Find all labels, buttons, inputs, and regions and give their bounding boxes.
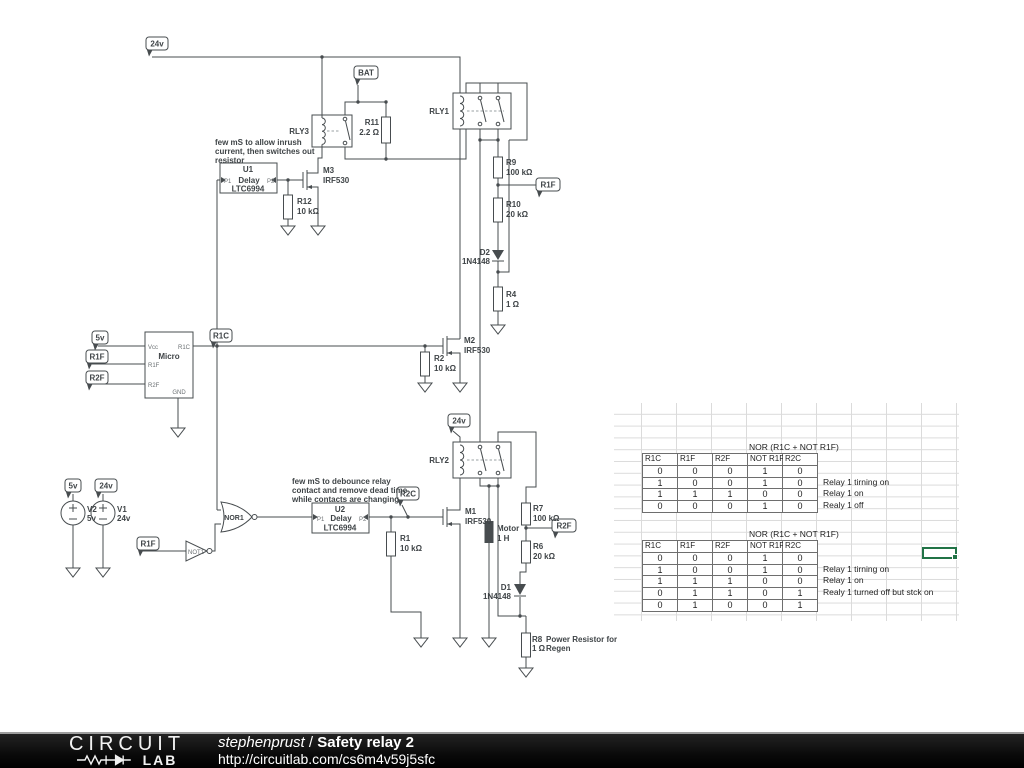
- resistor-r1: [387, 532, 396, 556]
- label-u2-delay: Delay: [330, 514, 352, 523]
- label-r10: R10: [506, 200, 521, 209]
- table-cell[interactable]: 0: [783, 576, 817, 587]
- table-cell[interactable]: 0: [643, 466, 677, 477]
- label-rly1: RLY1: [429, 107, 449, 116]
- flag-24v-rly2: 24v: [448, 414, 470, 434]
- selected-cell[interactable]: [922, 547, 957, 559]
- spreadsheet[interactable]: NOR (R1C + NOT R1F) R1CR1FR2FNOT R1FR2C0…: [614, 403, 959, 621]
- relay-rly1: [453, 93, 511, 129]
- svg-text:R1F: R1F: [89, 353, 104, 362]
- table-cell[interactable]: 0: [713, 600, 747, 611]
- column-header-cell[interactable]: NOT R1F: [748, 454, 782, 465]
- resistor-r7: [522, 503, 531, 525]
- logo-wordmark-lab: LAB: [143, 752, 178, 768]
- resistor-r11: [382, 117, 391, 143]
- table-cell[interactable]: 0: [783, 478, 817, 489]
- label-m3: M3: [323, 166, 335, 175]
- label-u2-p2: P2: [359, 517, 367, 523]
- label-v2: V2: [87, 505, 97, 514]
- label-r6: R6: [533, 542, 544, 551]
- pin-vcc: Vcc: [148, 345, 158, 351]
- label-u2: U2: [335, 505, 346, 514]
- label-m1-part: IRF530: [465, 517, 492, 526]
- row-annotation: Relay 1 tirning on: [820, 564, 889, 576]
- pin-r1f: R1F: [148, 363, 160, 369]
- table-cell[interactable]: 0: [783, 501, 817, 512]
- label-not1: NOT1: [188, 550, 205, 556]
- table-cell[interactable]: 0: [643, 600, 677, 611]
- label-m3-part: IRF530: [323, 176, 350, 185]
- label-u2-p1: P1: [317, 517, 325, 523]
- table-cell[interactable]: 1: [748, 501, 782, 512]
- svg-text:24v: 24v: [452, 417, 466, 426]
- label-r7: R7: [533, 504, 544, 513]
- table-cell[interactable]: 0: [678, 501, 712, 512]
- column-header-cell[interactable]: R1F: [678, 454, 712, 465]
- label-r12: R12: [297, 197, 312, 206]
- pin-gnd: GND: [172, 390, 186, 396]
- resistor-diode-icon: [77, 754, 141, 766]
- label-r4: R4: [506, 290, 517, 299]
- label-m2-part: IRF530: [464, 346, 491, 355]
- note-u2-line3: while contacts are changing: [291, 495, 399, 504]
- label-nor1: NOR1: [224, 515, 244, 522]
- table-cell[interactable]: 0: [713, 466, 747, 477]
- table-cell[interactable]: 0: [713, 501, 747, 512]
- fill-handle[interactable]: [952, 554, 958, 560]
- flag-r1f-not: R1F: [137, 537, 159, 557]
- table-cell[interactable]: 1: [748, 478, 782, 489]
- row-annotation: Relay 1 tirning on: [820, 477, 889, 489]
- truth-table-2: R1CR1FR2FNOT R1FR2C000101001011100011010…: [642, 540, 818, 612]
- resistor-r2: [421, 352, 430, 376]
- column-header-cell[interactable]: NOT R1F: [748, 541, 782, 552]
- label-r7-value: 100 kΩ: [533, 514, 560, 523]
- table-cell[interactable]: 0: [678, 553, 712, 564]
- flag-24v-src: 24v: [95, 479, 117, 499]
- relay-rly2: [453, 442, 511, 478]
- row-annotation: Relay 1 on: [820, 488, 864, 500]
- resistor-r10: [494, 198, 503, 222]
- page: 24v BAT R1F R1C 5v R1F R2F 24v R2C R2F 5…: [0, 0, 1024, 768]
- table-cell[interactable]: 0: [713, 565, 747, 576]
- label-r8-value: 1 Ω: [532, 644, 546, 653]
- column-header-cell[interactable]: R1C: [643, 541, 677, 552]
- column-header-cell[interactable]: R1C: [643, 454, 677, 465]
- label-u2-part: LTC6994: [324, 524, 357, 533]
- svg-text:R1F: R1F: [140, 540, 155, 549]
- table-cell[interactable]: 0: [783, 489, 817, 500]
- label-r12-value: 10 kΩ: [297, 207, 320, 216]
- label-m2: M2: [464, 336, 476, 345]
- svg-text:24v: 24v: [99, 482, 113, 491]
- table-cell[interactable]: 0: [643, 588, 677, 599]
- label-rly3: RLY3: [289, 127, 309, 136]
- table-cell[interactable]: 0: [678, 478, 712, 489]
- column-header-cell[interactable]: R2F: [713, 454, 747, 465]
- pin-r2f: R2F: [148, 383, 160, 389]
- label-d1: D1: [501, 583, 512, 592]
- flag-24v-top: 24v: [146, 37, 168, 57]
- circuit-title-line: stephenprust / Safety relay 2: [218, 735, 435, 751]
- label-r4-value: 1 Ω: [506, 300, 520, 309]
- flag-5v-micro: 5v: [92, 331, 108, 351]
- table-note: NOR (R1C + NOT R1F): [749, 442, 839, 453]
- relay-rly3: [312, 115, 352, 147]
- label-d1-part: 1N4148: [483, 592, 512, 601]
- svg-text:R1C: R1C: [213, 332, 229, 341]
- table-cell[interactable]: 0: [748, 600, 782, 611]
- column-header-cell[interactable]: R2C: [783, 541, 817, 552]
- row-annotation: Realy 1 off: [820, 500, 863, 512]
- table-cell[interactable]: 1: [748, 553, 782, 564]
- table-cell[interactable]: 1: [678, 489, 712, 500]
- label-rly2: RLY2: [429, 456, 449, 465]
- note-r8-line2: Regen: [546, 644, 571, 653]
- column-header-cell[interactable]: R2C: [783, 454, 817, 465]
- svg-text:5v: 5v: [96, 334, 105, 343]
- table-cell[interactable]: 0: [748, 576, 782, 587]
- column-header-cell[interactable]: R2F: [713, 541, 747, 552]
- table-cell[interactable]: 0: [748, 588, 782, 599]
- truth-table-1: R1CR1FR2FNOT R1FR2C00010100101110000010: [642, 453, 818, 513]
- footer-bar: CIRCUIT LAB stephenprust / Safety relay …: [0, 732, 1024, 768]
- resistor-r6: [522, 541, 531, 563]
- label-r11-value: 2.2 Ω: [359, 128, 379, 137]
- flag-r2f-micro: R2F: [86, 371, 108, 391]
- label-r1-value: 10 kΩ: [400, 544, 423, 553]
- table-cell[interactable]: 1: [678, 576, 712, 587]
- note-u1-line2: current, then switches out: [215, 147, 315, 156]
- svg-text:BAT: BAT: [358, 69, 374, 78]
- table-cell[interactable]: 1: [678, 588, 712, 599]
- svg-text:5v: 5v: [69, 482, 78, 491]
- table-cell[interactable]: 0: [783, 565, 817, 576]
- table-cell[interactable]: 0: [643, 553, 677, 564]
- row-annotation: Relay 1 on: [820, 575, 864, 587]
- label-r1: R1: [400, 534, 411, 543]
- flag-bat: BAT: [354, 66, 378, 86]
- table-cell[interactable]: 1: [678, 600, 712, 611]
- circuit-title: Safety relay 2: [317, 734, 414, 751]
- label-u1-p2: P2: [267, 179, 275, 185]
- note-u2-line2: contact and remove dead time: [292, 486, 408, 495]
- flag-r1f-micro: R1F: [86, 350, 108, 370]
- label-v1: V1: [117, 505, 127, 514]
- circuit-url[interactable]: http://circuitlab.com/cs6m4v59j5sfc: [218, 751, 435, 767]
- label-r10-value: 20 kΩ: [506, 210, 529, 219]
- label-motor-value: 1 H: [497, 534, 510, 543]
- resistor-r12: [284, 195, 293, 219]
- svg-text:24v: 24v: [150, 40, 164, 49]
- flag-r1f-right: R1F: [536, 178, 560, 198]
- table-cell[interactable]: 1: [748, 466, 782, 477]
- table-cell[interactable]: 0: [713, 553, 747, 564]
- note-r8-line1: Power Resistor for: [546, 635, 617, 644]
- note-u1-line1: few mS to allow inrush: [215, 138, 302, 147]
- table-cell[interactable]: 1: [713, 489, 747, 500]
- table-cell[interactable]: 1: [783, 588, 817, 599]
- label-r9: R9: [506, 158, 517, 167]
- label-r2-value: 10 kΩ: [434, 364, 457, 373]
- table-cell[interactable]: 0: [678, 565, 712, 576]
- table-cell[interactable]: 0: [783, 466, 817, 477]
- label-micro: Micro: [158, 352, 179, 361]
- table-cell[interactable]: 1: [783, 600, 817, 611]
- table-note: NOR (R1C + NOT R1F): [749, 529, 839, 540]
- column-header-cell[interactable]: R1F: [678, 541, 712, 552]
- label-r6-value: 20 kΩ: [533, 552, 556, 561]
- circuitlab-logo: CIRCUIT LAB: [42, 735, 212, 768]
- table-cell[interactable]: 0: [783, 553, 817, 564]
- svg-text:R2F: R2F: [89, 374, 104, 383]
- note-u1-line3: resistor: [215, 156, 244, 165]
- label-r2: R2: [434, 354, 445, 363]
- svg-text:R1F: R1F: [540, 181, 555, 190]
- label-motor: Motor: [497, 524, 519, 533]
- label-d2: D2: [480, 248, 491, 257]
- label-u1-part: LTC6994: [232, 185, 265, 194]
- table-cell[interactable]: 1: [713, 576, 747, 587]
- note-u2-line1: few mS to debounce relay: [292, 477, 391, 486]
- table-cell[interactable]: 1: [643, 478, 677, 489]
- pin-r1c: R1C: [178, 345, 191, 351]
- source-v2: [61, 501, 85, 525]
- resistor-r4: [494, 287, 503, 311]
- label-r9-value: 100 kΩ: [506, 168, 533, 177]
- table-cell[interactable]: 1: [748, 565, 782, 576]
- label-u1: U1: [243, 165, 254, 174]
- resistor-r8: [522, 633, 531, 657]
- row-annotation: Realy 1 turned off but stck on: [820, 587, 933, 599]
- table-cell[interactable]: 0: [748, 489, 782, 500]
- table-cell[interactable]: 0: [643, 501, 677, 512]
- table-cell[interactable]: 1: [643, 489, 677, 500]
- resistor-r9: [494, 157, 503, 178]
- circuit-schematic: 24v BAT R1F R1C 5v R1F R2F 24v R2C R2F 5…: [0, 0, 1024, 768]
- table-cell[interactable]: 0: [713, 478, 747, 489]
- table-cell[interactable]: 1: [643, 576, 677, 587]
- table-cell[interactable]: 0: [678, 466, 712, 477]
- diode-d2: [492, 250, 504, 261]
- label-r11-name: R11: [365, 118, 380, 127]
- label-r8: R8: [532, 635, 543, 644]
- diode-d1: [514, 584, 526, 596]
- table-cell[interactable]: 1: [713, 588, 747, 599]
- label-m1: M1: [465, 507, 477, 516]
- author-name: stephenprust: [218, 734, 305, 751]
- label-v2-value: 5v: [87, 514, 96, 523]
- label-d2-part: 1N4148: [462, 257, 491, 266]
- label-v1-value: 24v: [117, 514, 131, 523]
- table-cell[interactable]: 1: [643, 565, 677, 576]
- separator: /: [305, 734, 318, 751]
